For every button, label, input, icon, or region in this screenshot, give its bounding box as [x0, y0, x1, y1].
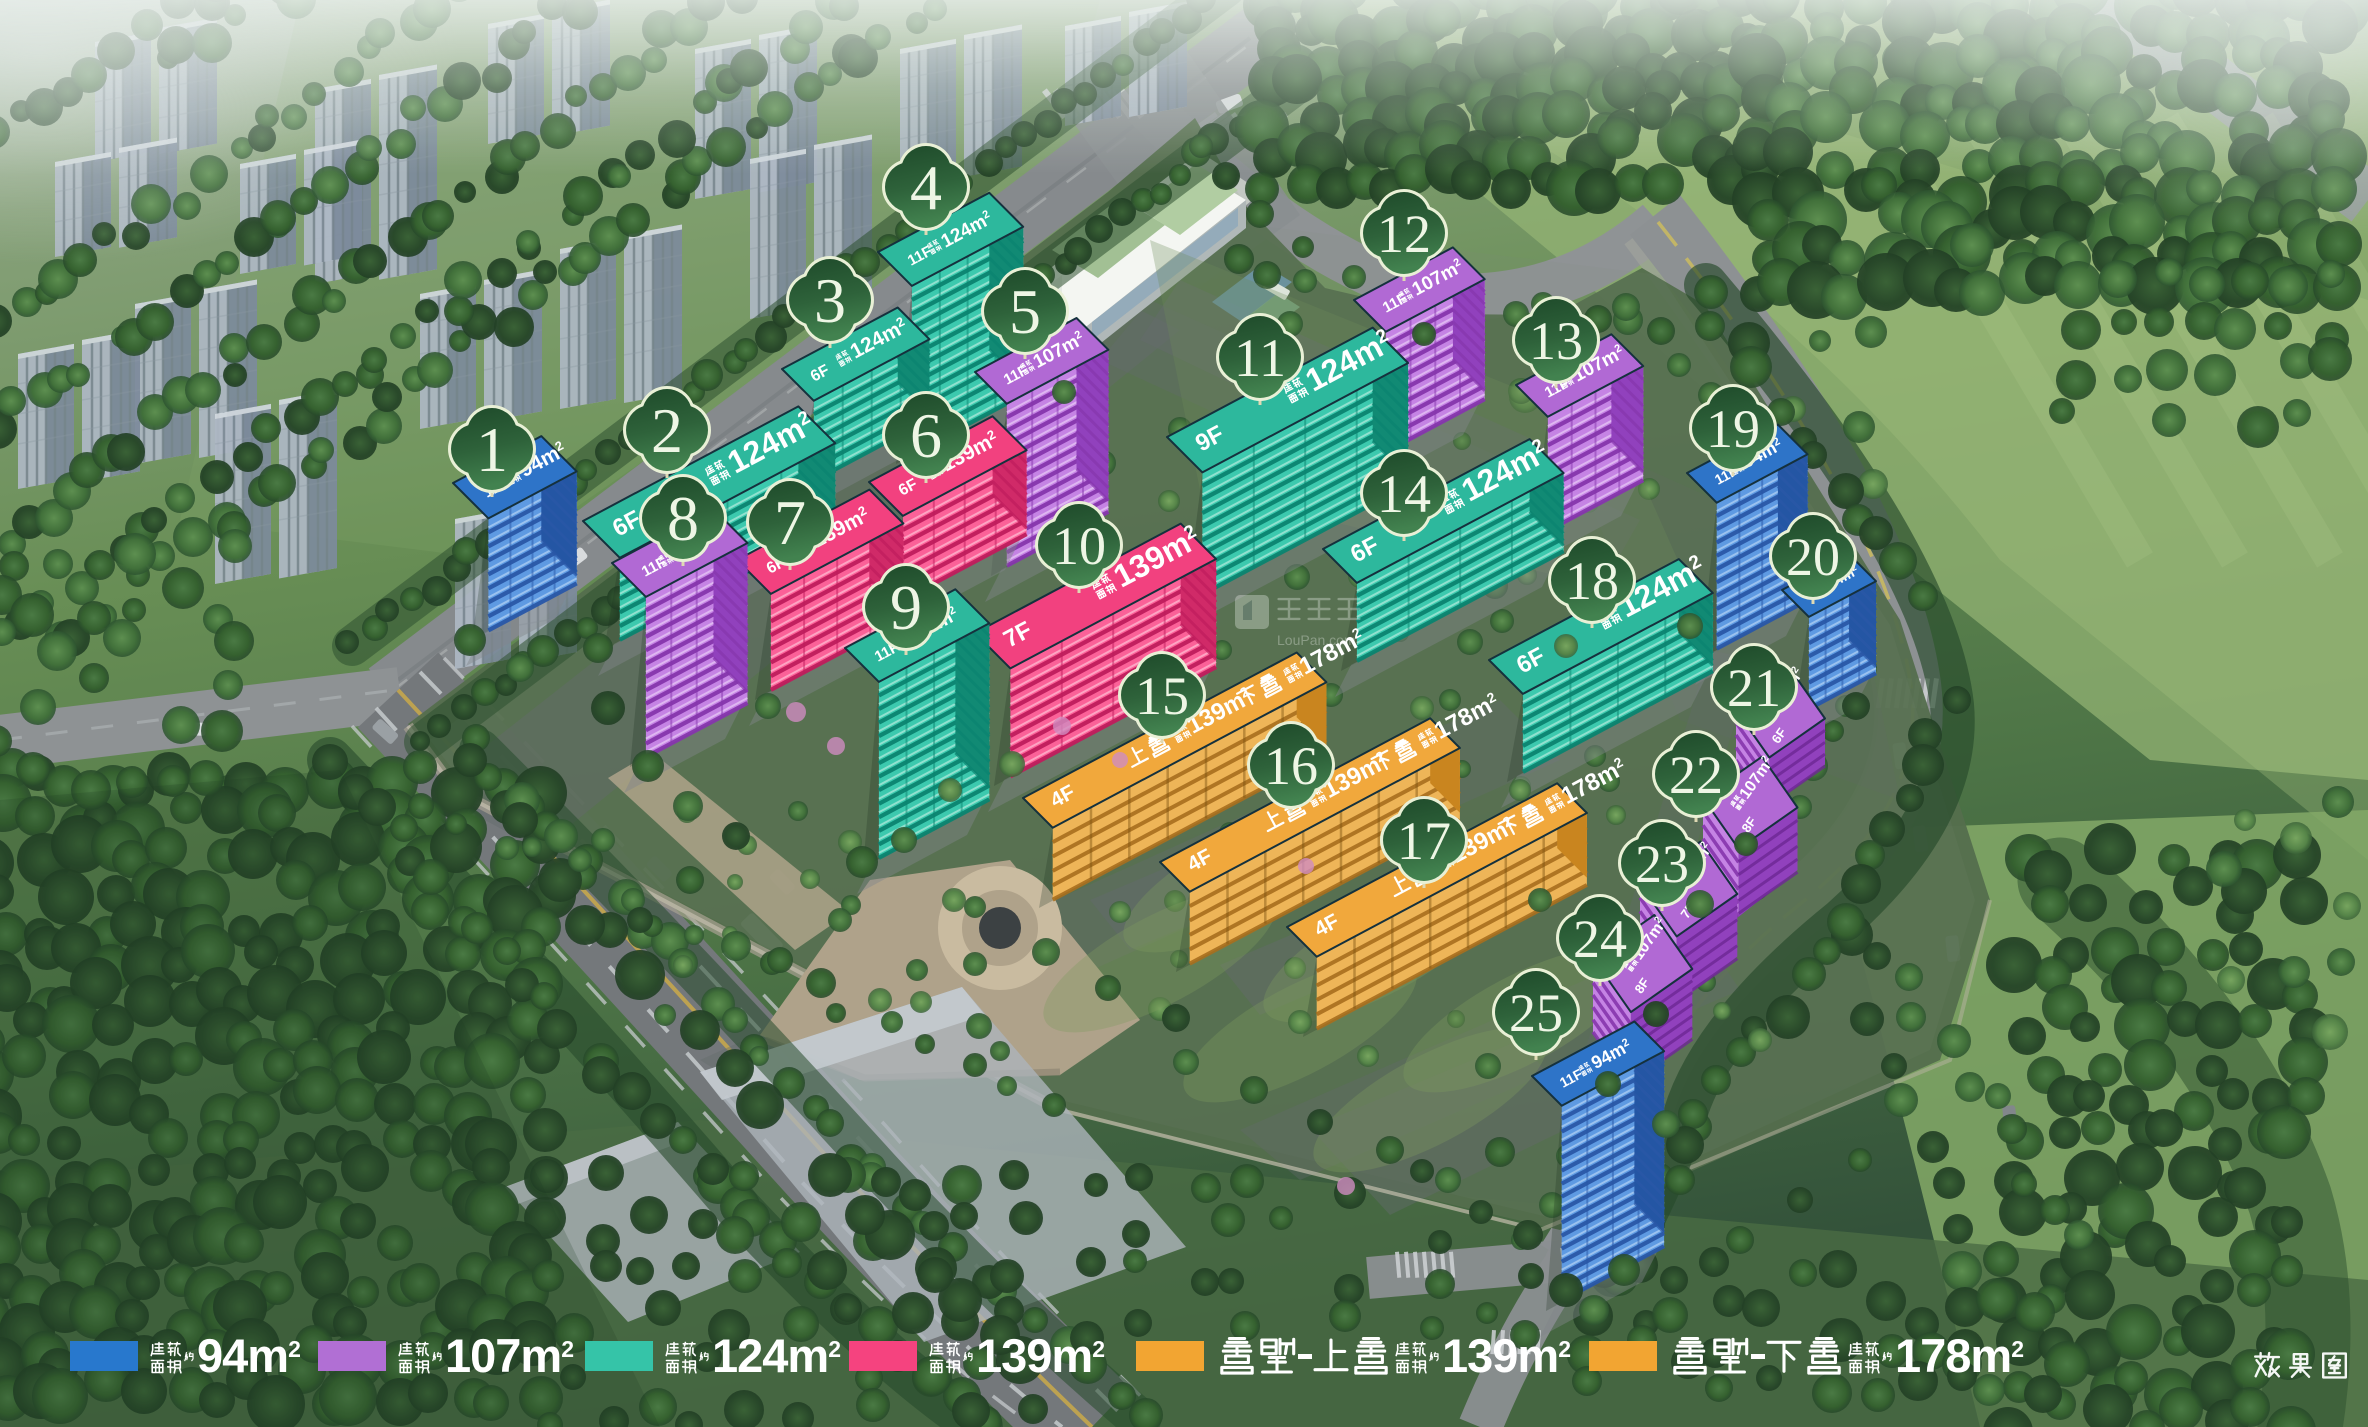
svg-text:12: 12	[1377, 204, 1431, 264]
svg-text:178m2: 178m2	[1895, 1329, 2023, 1382]
svg-text:7: 7	[774, 487, 806, 558]
svg-text:139m2: 139m2	[1442, 1329, 1570, 1382]
svg-text:21: 21	[1727, 658, 1781, 718]
svg-text:3: 3	[814, 265, 846, 336]
svg-text:13: 13	[1529, 311, 1583, 371]
svg-text:17: 17	[1397, 811, 1451, 871]
svg-text:4: 4	[910, 152, 942, 223]
svg-text:6: 6	[910, 400, 942, 471]
svg-text:94m2: 94m2	[197, 1329, 300, 1382]
svg-text:LouPan.com: LouPan.com	[1277, 632, 1356, 648]
svg-text:16: 16	[1264, 736, 1318, 796]
svg-text:10: 10	[1052, 516, 1106, 576]
svg-text:19: 19	[1706, 399, 1760, 459]
svg-text:8: 8	[667, 483, 699, 554]
svg-text:18: 18	[1565, 551, 1619, 611]
svg-text:25: 25	[1509, 983, 1563, 1043]
svg-text:24: 24	[1573, 909, 1627, 969]
svg-text:22: 22	[1669, 745, 1723, 805]
svg-text:139m2: 139m2	[976, 1329, 1104, 1382]
svg-text:20: 20	[1786, 527, 1840, 587]
svg-text:1: 1	[476, 414, 508, 485]
svg-text:5: 5	[1009, 276, 1041, 347]
svg-text:15: 15	[1135, 666, 1189, 726]
svg-text:11: 11	[1234, 328, 1286, 388]
svg-text:107m2: 107m2	[445, 1329, 573, 1382]
svg-text:9: 9	[890, 572, 922, 643]
svg-text:2: 2	[651, 395, 683, 466]
svg-text:14: 14	[1377, 464, 1431, 524]
svg-text:124m2: 124m2	[712, 1329, 840, 1382]
svg-text:23: 23	[1635, 834, 1689, 894]
